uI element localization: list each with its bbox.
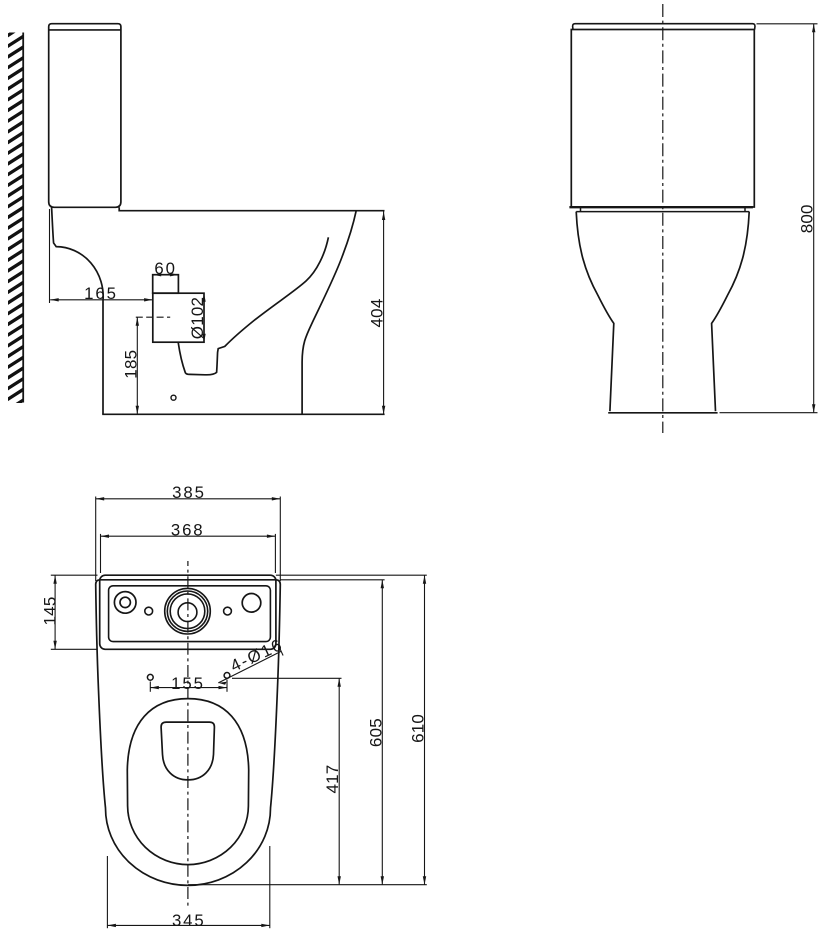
svg-text:385: 385: [172, 483, 206, 502]
svg-text:345: 345: [172, 911, 206, 930]
svg-text:165: 165: [84, 284, 118, 303]
svg-text:155: 155: [171, 674, 205, 693]
svg-text:60: 60: [154, 259, 176, 278]
svg-text:404: 404: [368, 299, 387, 328]
svg-text:417: 417: [323, 765, 342, 794]
svg-text:Ø102: Ø102: [188, 297, 207, 339]
svg-text:605: 605: [366, 718, 385, 747]
svg-text:610: 610: [409, 714, 428, 743]
svg-text:368: 368: [171, 521, 205, 540]
svg-text:185: 185: [121, 350, 140, 379]
svg-text:800: 800: [798, 204, 817, 233]
svg-text:145: 145: [40, 597, 59, 626]
